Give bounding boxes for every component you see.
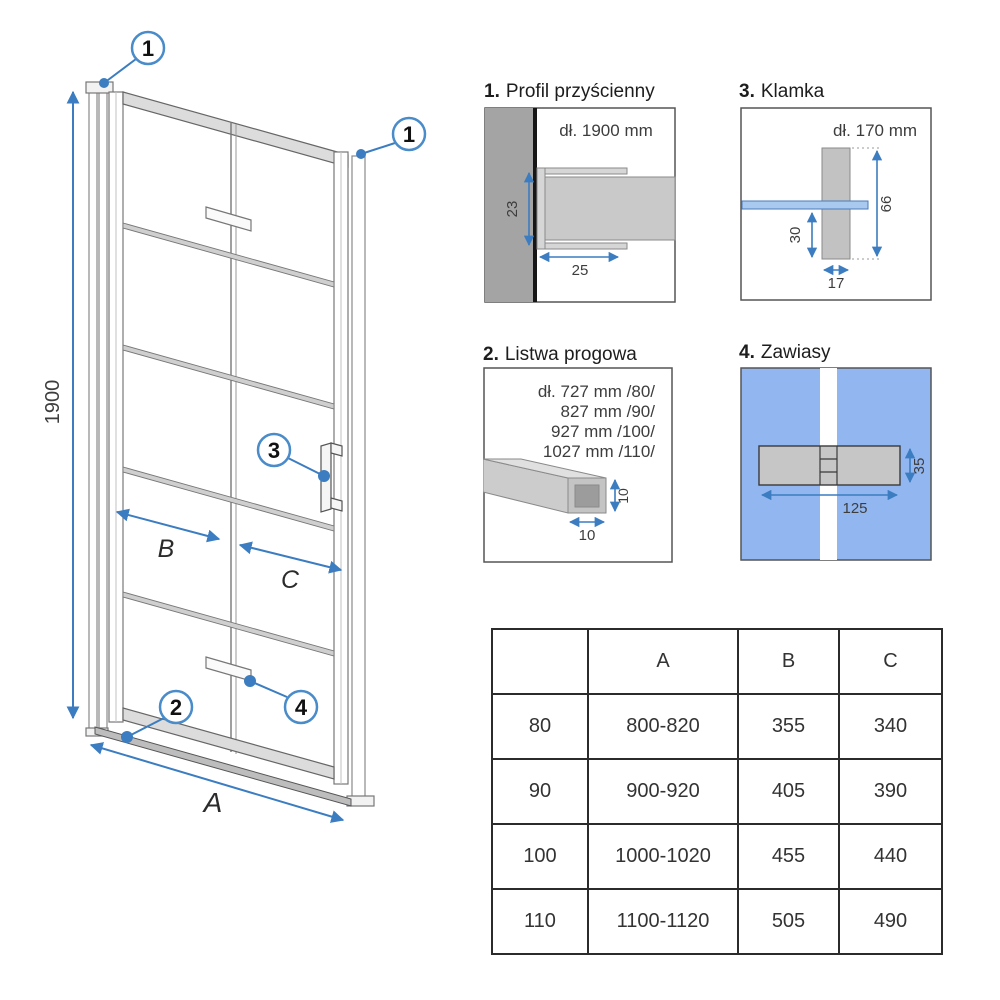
table-cell: 900-920 — [588, 759, 738, 824]
panel-2-title: 2.Listwa progowa — [483, 344, 637, 366]
size-table: A B C 80 800-820 355 340 90 900-920 405 … — [491, 628, 943, 955]
right-wall-profile — [352, 156, 365, 801]
table-cell: 505 — [738, 889, 839, 954]
svg-text:4: 4 — [295, 695, 308, 720]
glazing-bars — [123, 223, 334, 656]
table-row: 80 800-820 355 340 — [492, 694, 942, 759]
shower-door-diagram: 1900 — [0, 0, 480, 860]
zawiasy-width-dim: 125 — [842, 500, 867, 517]
table-header-cell: A — [588, 629, 738, 694]
glass-through-bar — [742, 201, 868, 209]
panel-4-drawing: 125 35 — [740, 367, 932, 561]
dim-b-label: B — [158, 535, 175, 563]
table-cell: 110 — [492, 889, 588, 954]
table-cell: 455 — [738, 824, 839, 889]
glass-panel-section — [545, 177, 675, 240]
profil-depth-dim: 23 — [504, 201, 521, 218]
zawiasy-height-dim: 35 — [911, 458, 928, 475]
table-cell: 390 — [839, 759, 942, 824]
svg-text:1: 1 — [142, 36, 154, 61]
listwa-width-dim: 10 — [579, 527, 596, 544]
hinge-drawing — [759, 446, 900, 485]
size-table-header-row: A B C — [492, 629, 942, 694]
table-cell: 440 — [839, 824, 942, 889]
table-cell: 90 — [492, 759, 588, 824]
height-dimension-label: 1900 — [42, 380, 64, 425]
table-row: 90 900-920 405 390 — [492, 759, 942, 824]
panel-3-title: 3.Klamka — [739, 81, 824, 103]
panel-2-name: Listwa progowa — [505, 344, 637, 365]
table-row: 100 1000-1020 455 440 — [492, 824, 942, 889]
table-cell: 100 — [492, 824, 588, 889]
svg-text:827 mm /90/: 827 mm /90/ — [561, 402, 656, 421]
table-cell: 340 — [839, 694, 942, 759]
table-cell: 1100-1120 — [588, 889, 738, 954]
table-row: 110 1100-1120 505 490 — [492, 889, 942, 954]
svg-text:dł. 727 mm /80/: dł. 727 mm /80/ — [538, 382, 655, 401]
table-cell: 800-820 — [588, 694, 738, 759]
listwa-length-labels: dł. 727 mm /80/ 827 mm /90/ 927 mm /100/… — [538, 382, 655, 461]
profil-width-dim: 25 — [572, 262, 589, 279]
height-dimension: 1900 — [42, 92, 73, 718]
svg-text:3: 3 — [268, 438, 280, 463]
panel-4-number: 4. — [739, 342, 755, 363]
table-cell: 80 — [492, 694, 588, 759]
listwa-height-dim: 10 — [615, 488, 631, 504]
dim-a-label: A — [202, 787, 223, 818]
klamka-offset-dim: 30 — [787, 227, 804, 244]
panel-2-drawing: dł. 727 mm /80/ 827 mm /90/ 927 mm /100/… — [483, 367, 673, 563]
table-cell: 1000-1020 — [588, 824, 738, 889]
table-cell: 355 — [738, 694, 839, 759]
panel-1-title: 1.Profil przyścienny — [484, 81, 655, 103]
table-header-cell: C — [839, 629, 942, 694]
panel-1-number: 1. — [484, 81, 500, 102]
profil-length-label: dł. 1900 mm — [559, 121, 653, 140]
technical-datasheet-page: 1900 — [0, 0, 1000, 1000]
panel-1-name: Profil przyścienny — [506, 81, 655, 102]
table-header-cell — [492, 629, 588, 694]
panel-3-drawing: dł. 170 mm 66 30 17 — [740, 107, 932, 301]
klamka-width-dim: 17 — [828, 275, 845, 292]
callout-3: 3 — [258, 434, 330, 482]
panel-3-name: Klamka — [761, 81, 824, 102]
svg-text:2: 2 — [170, 695, 182, 720]
wall-profile-section — [537, 168, 675, 249]
panel-1-drawing: dł. 1900 mm 23 25 — [484, 107, 676, 303]
callout-4: 4 — [244, 675, 317, 723]
klamka-length-label: dł. 170 mm — [833, 121, 917, 140]
panel-4-title: 4.Zawiasy — [739, 342, 831, 364]
table-cell: 405 — [738, 759, 839, 824]
bottom-hinge — [206, 657, 251, 681]
svg-text:1: 1 — [403, 122, 415, 147]
table-cell: 490 — [839, 889, 942, 954]
table-header-cell: B — [738, 629, 839, 694]
panel-4-name: Zawiasy — [761, 342, 831, 363]
svg-text:927 mm /100/: 927 mm /100/ — [551, 422, 655, 441]
callout-1-top-left: 1 — [99, 32, 164, 88]
svg-text:1027 mm /110/: 1027 mm /110/ — [543, 442, 655, 461]
callout-1-right: 1 — [356, 118, 425, 159]
panel-2-number: 2. — [483, 344, 499, 365]
klamka-height-dim: 66 — [878, 196, 895, 213]
panel-3-number: 3. — [739, 81, 755, 102]
dim-c-label: C — [281, 566, 300, 594]
top-hinge — [206, 207, 251, 231]
